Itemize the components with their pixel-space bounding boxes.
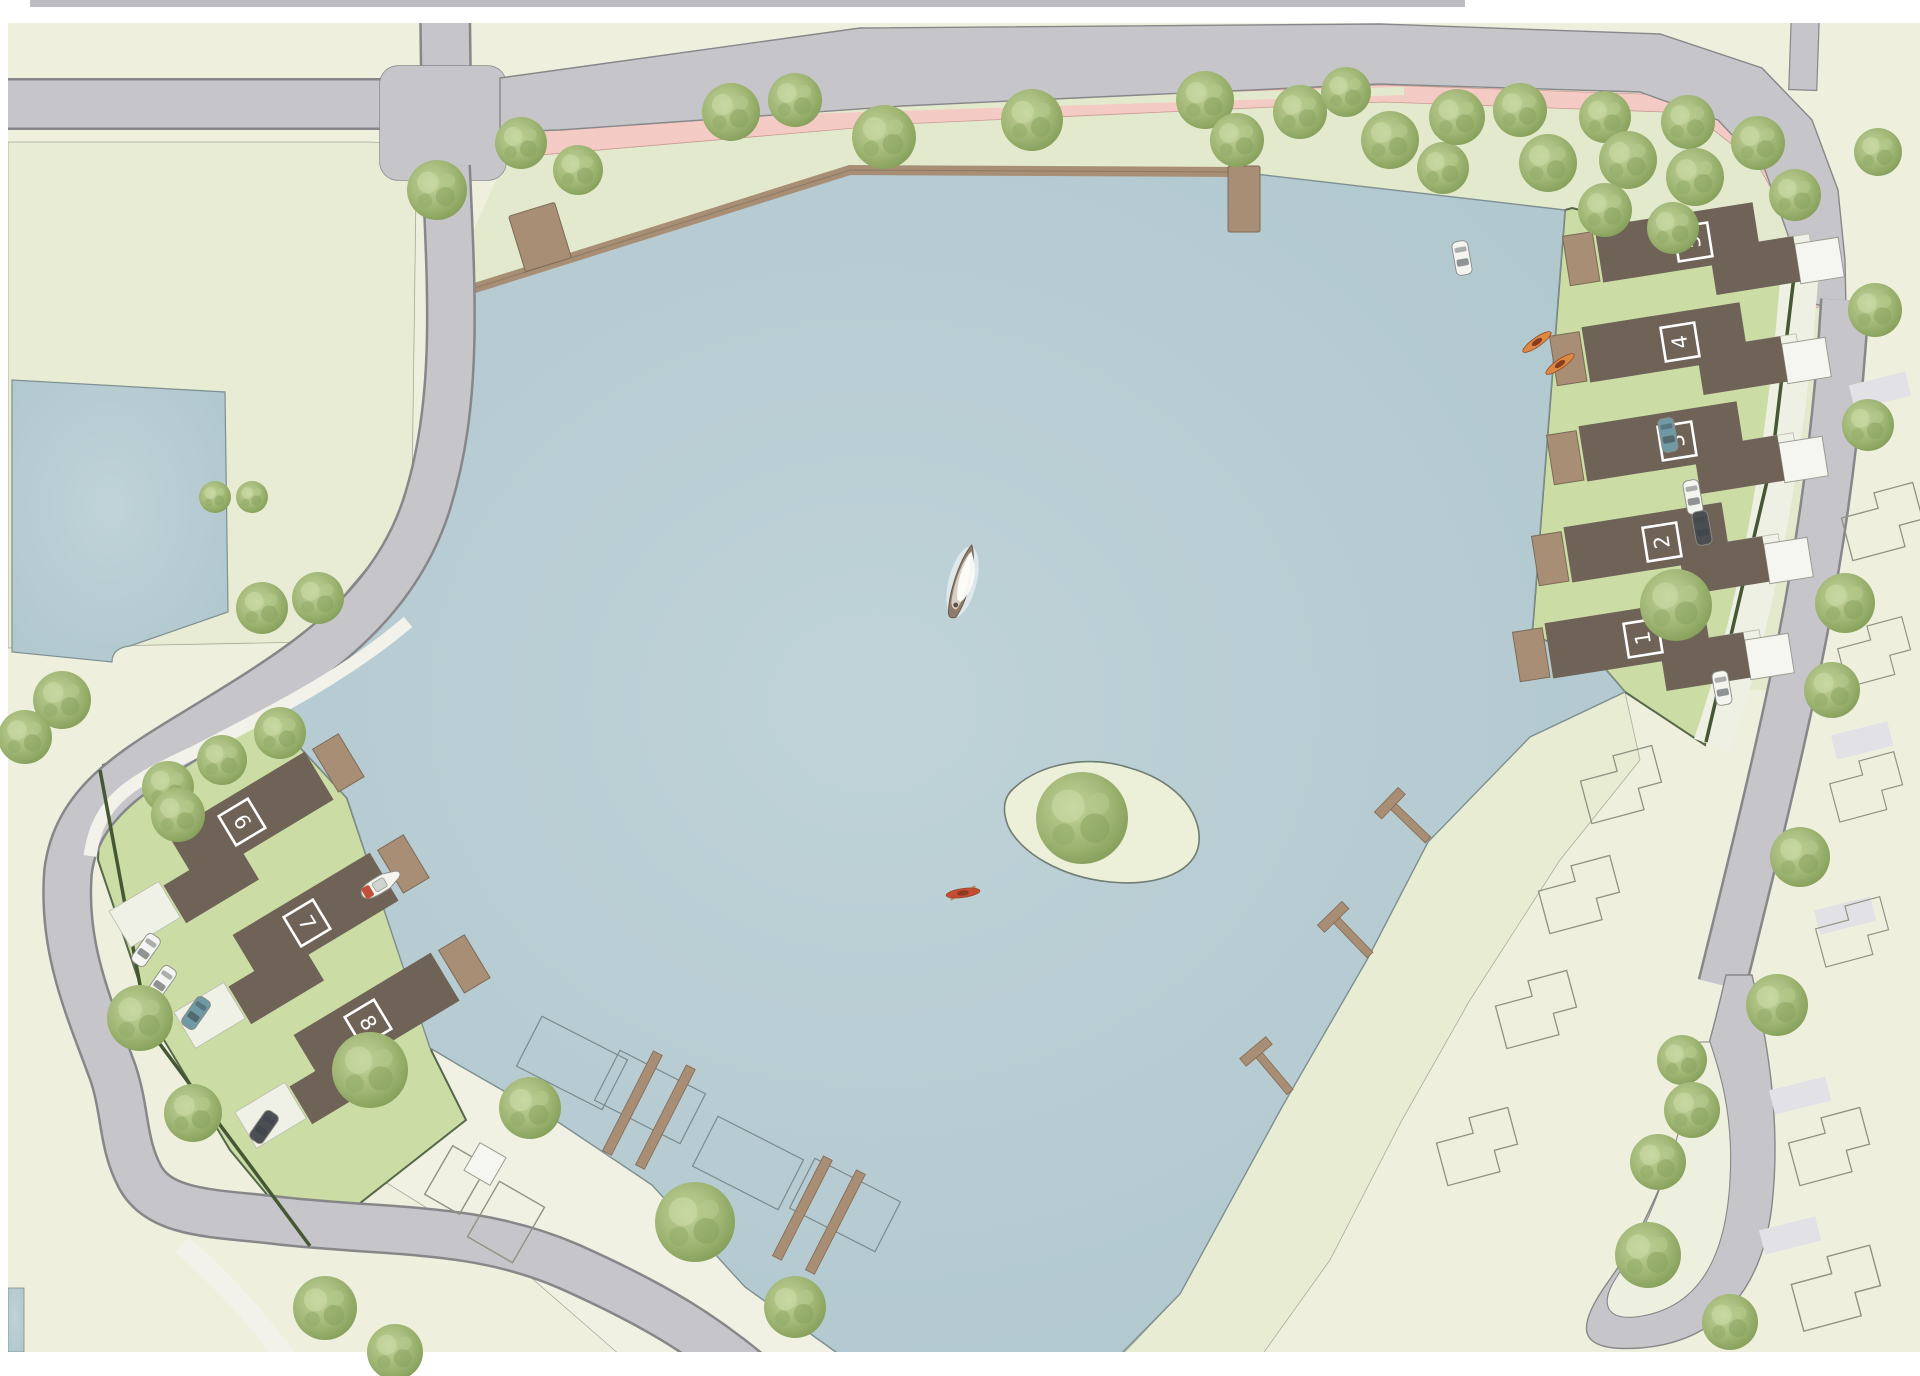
tree-icon — [1630, 1134, 1686, 1190]
tree-icon — [407, 160, 467, 220]
tree-icon — [702, 83, 760, 141]
tree-icon — [1321, 67, 1371, 117]
tree-icon — [1804, 662, 1860, 718]
tree-icon — [332, 1032, 408, 1108]
pond — [12, 380, 228, 662]
tree-icon — [764, 1276, 826, 1338]
garage — [1795, 237, 1845, 283]
garage — [1779, 436, 1829, 482]
tree-icon — [1493, 83, 1547, 137]
tree-icon — [1815, 573, 1875, 633]
bottom-margin — [0, 1352, 1920, 1376]
tree-icon — [1615, 1222, 1681, 1288]
tree-icon — [1417, 142, 1469, 194]
tree-icon — [197, 735, 247, 785]
site-plan-page: 54321678 — [0, 0, 1920, 1376]
tree-icon — [1001, 89, 1063, 151]
tree-icon — [1429, 89, 1485, 145]
tree-icon — [553, 145, 603, 195]
tree-icon — [1848, 283, 1902, 337]
tree-icon — [1661, 95, 1715, 149]
tree-icon — [164, 1084, 222, 1142]
quay-block-right — [1228, 166, 1260, 232]
tree-icon — [236, 582, 288, 634]
tree-icon — [1599, 131, 1657, 189]
tree-icon — [236, 481, 268, 513]
tree-icon — [1842, 399, 1894, 451]
tree-icon — [199, 481, 231, 513]
tree-icon — [1036, 772, 1128, 864]
tree-icon — [0, 710, 52, 764]
water-sliver — [8, 1288, 24, 1352]
tree-icon — [1210, 113, 1264, 167]
top-road-strip — [30, 0, 1465, 7]
garage — [1764, 537, 1814, 583]
tree-icon — [852, 105, 916, 169]
top-margin — [0, 7, 1920, 23]
tree-icon — [107, 985, 173, 1051]
tree-icon — [1640, 569, 1712, 641]
tree-icon — [1702, 1294, 1758, 1350]
tree-icon — [1769, 169, 1821, 221]
tree-icon — [1519, 134, 1577, 192]
tree-icon — [1664, 1082, 1720, 1138]
left-margin — [0, 0, 8, 1376]
tree-icon — [1731, 116, 1785, 170]
tree-icon — [151, 788, 205, 842]
tree-icon — [1770, 827, 1830, 887]
tree-icon — [254, 707, 306, 759]
tree-icon — [1854, 128, 1902, 176]
tree-icon — [655, 1182, 735, 1262]
tree-icon — [292, 572, 344, 624]
tree-icon — [1273, 85, 1327, 139]
tree-icon — [1746, 974, 1808, 1036]
tree-icon — [293, 1276, 357, 1340]
tree-icon — [1647, 202, 1699, 254]
tree-icon — [1657, 1035, 1707, 1085]
garage — [1782, 337, 1832, 383]
tree-icon — [768, 73, 822, 127]
tree-icon — [499, 1077, 561, 1139]
tree-icon — [1578, 183, 1632, 237]
tree-icon — [1361, 111, 1419, 169]
garage — [1745, 633, 1795, 679]
tree-icon — [1666, 148, 1724, 206]
tree-icon — [495, 117, 547, 169]
site-plan-map: 54321678 — [0, 0, 1920, 1376]
